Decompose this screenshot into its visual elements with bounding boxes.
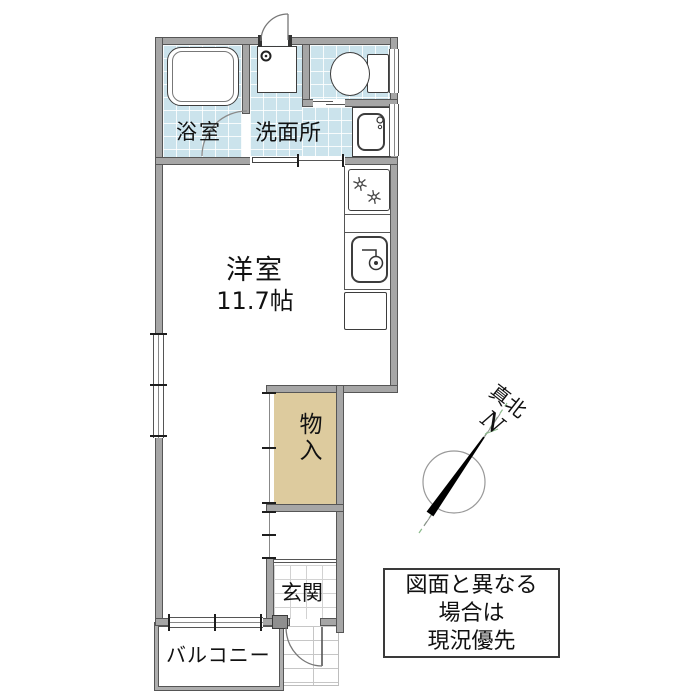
window-center-line (158, 334, 159, 438)
entrance-porch-paving (283, 626, 339, 686)
floorplan-canvas: N 真北 浴室 洗面所 洋室 11.7帖 物入 玄関 バルコニー 図面と異なる … (0, 0, 700, 700)
vanity-basin (357, 113, 385, 151)
main-room-size-label: 11.7帖 (199, 281, 311, 316)
door-end-tick (262, 511, 276, 513)
compass-axis-line (424, 414, 500, 526)
counter-divider-line-2 (344, 232, 391, 233)
wall-entrance-left (266, 558, 274, 620)
balcony-sliding-window (169, 617, 263, 628)
laundry-door-opening (261, 37, 289, 45)
window-tick (150, 435, 167, 437)
window-center-line (169, 622, 263, 623)
compass-needle (427, 437, 485, 517)
window-tick (168, 614, 170, 631)
compass: N 真北 (403, 376, 553, 541)
washroom-sliding-door-opening (250, 156, 345, 165)
wall-storage-bottom (266, 504, 344, 512)
disclaimer-box: 図面と異なる 場合は 現況優先 (383, 568, 560, 658)
toilet-window (389, 49, 399, 93)
toilet-tank (367, 54, 389, 93)
window-tick (150, 333, 167, 335)
washing-machine-pan (257, 46, 297, 93)
disclaimer-line-2: 場合は (385, 600, 558, 628)
window-tick (260, 614, 262, 631)
door-end-tick (297, 154, 299, 167)
laundry-door-hinge (258, 35, 262, 47)
bathroom-label: 浴室 (176, 116, 222, 146)
disclaimer-line-3: 現況優先 (385, 628, 558, 656)
wall-bath-washroom (242, 44, 250, 114)
door-mid-tick (262, 447, 276, 449)
entrance-step-line (274, 559, 336, 563)
compass-true-north-label: 真北 (485, 379, 531, 423)
wall-left (155, 37, 163, 626)
disclaimer-line-1: 図面と異なる (385, 572, 558, 600)
entrance-label: 玄関 (281, 577, 323, 607)
compass-circle (423, 451, 485, 513)
sliding-door-track-line (298, 160, 343, 161)
storage-folding-door-opening (265, 393, 274, 504)
left-wall-window (153, 334, 164, 438)
sliding-door-line (313, 101, 333, 102)
kitchen-sink (351, 236, 388, 283)
sliding-door-line (326, 104, 345, 105)
door-mid-tick (262, 534, 276, 536)
entrance-door-hinge-plate (272, 615, 288, 629)
window-tick (150, 384, 167, 386)
refrigerator-space (344, 292, 387, 330)
compass-north-tick (485, 429, 498, 434)
sliding-door-panel (252, 157, 298, 163)
washroom-window (389, 104, 399, 156)
wall-toilet-left (302, 44, 310, 107)
laundry-door-hinge (288, 35, 292, 47)
compass-green-dashed-line (419, 403, 507, 533)
bathtub-inner-rim (172, 51, 234, 102)
toilet-bowl (330, 52, 370, 96)
washroom-label: 洗面所 (255, 115, 321, 147)
window-tick (214, 614, 216, 631)
compass-n-letter: N (475, 404, 510, 440)
door-end-tick (342, 154, 344, 167)
counter-divider-line-1 (344, 214, 391, 215)
hall-door-opening (265, 512, 274, 558)
window-center-line (394, 104, 395, 156)
storage-label: 物入 (291, 412, 325, 464)
door-end-tick (262, 502, 276, 504)
wall-step-storage-top (266, 385, 398, 393)
balcony-label: バルコニー (166, 639, 271, 668)
stove-unit (348, 169, 390, 211)
window-center-line (394, 49, 395, 93)
wall-entrance-door-jamb (320, 618, 337, 626)
door-end-tick (262, 392, 276, 394)
toilet-sliding-door-opening (313, 99, 345, 107)
